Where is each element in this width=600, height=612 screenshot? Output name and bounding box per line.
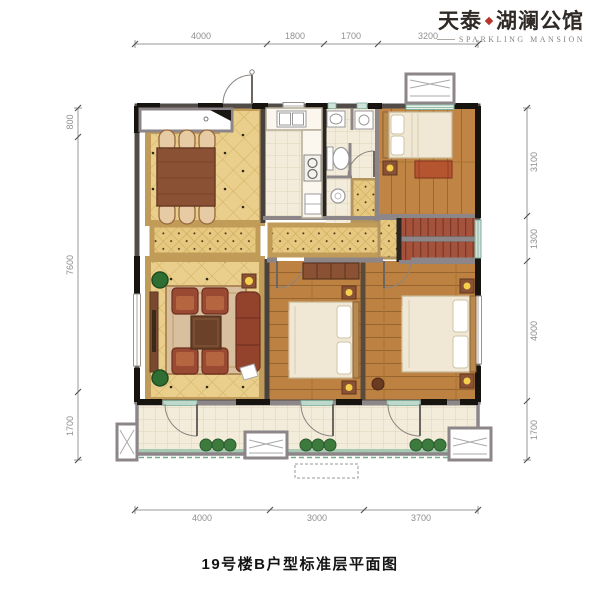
coffee-table xyxy=(191,316,221,349)
living-room-furniture xyxy=(150,272,260,386)
ac-platform-bottom-right xyxy=(449,428,491,460)
hall-cabinet-square xyxy=(379,218,399,258)
pedestal-sink xyxy=(331,189,345,203)
dimension-label: 3700 xyxy=(401,513,441,523)
balcony-threshold-2 xyxy=(301,401,333,406)
plan-caption: 19号楼B户型标准层平面图 xyxy=(0,553,600,574)
ac-platform-left xyxy=(117,424,137,460)
plant-living-2 xyxy=(152,370,168,386)
window-stairs-right xyxy=(475,220,481,258)
plants-balcony-3 xyxy=(410,439,446,451)
window-bath-1 xyxy=(328,103,336,109)
balcony-threshold-3 xyxy=(387,401,420,406)
dimension-label: 3200 xyxy=(408,31,448,41)
dimension-label: 1700 xyxy=(331,31,371,41)
dining-table xyxy=(157,148,215,206)
plants-balcony-1 xyxy=(200,439,236,451)
dimension-label: 1800 xyxy=(275,31,315,41)
closet-top-left xyxy=(140,109,232,131)
plant-living-1 xyxy=(152,272,168,288)
balcony-threshold-1 xyxy=(163,401,197,406)
washing-machine xyxy=(355,111,373,129)
hallway-band-left xyxy=(152,225,258,255)
dimension-label: 3000 xyxy=(297,513,337,523)
ac-unit-balcony xyxy=(245,432,287,458)
drip-edge-dashed xyxy=(295,464,358,478)
dimension-label: 800 xyxy=(65,102,75,142)
sofa xyxy=(236,292,260,372)
floorplan-page: 天泰湖澜公馆 SPARKLING MANSION xyxy=(0,0,600,612)
window-bath-2 xyxy=(357,103,367,109)
dimension-label: 7600 xyxy=(65,245,75,285)
toilet xyxy=(327,147,349,170)
stove xyxy=(304,155,321,181)
dimension-label: 1700 xyxy=(65,406,75,446)
hallway-band-right xyxy=(270,225,388,255)
vanity-square xyxy=(352,179,376,221)
ac-platform-top-right xyxy=(406,74,454,103)
dimension-label: 4000 xyxy=(181,31,221,41)
window-living-left xyxy=(134,294,141,366)
dimension-label: 4000 xyxy=(182,513,222,523)
entry-door xyxy=(223,70,254,104)
stool-master xyxy=(372,378,384,390)
dimension-label: 3100 xyxy=(529,142,539,182)
rug-top-bedroom xyxy=(415,161,452,178)
bed-top-headboard xyxy=(383,112,389,158)
dining-set xyxy=(157,130,215,224)
dimension-label: 4000 xyxy=(529,311,539,351)
dimension-label: 1700 xyxy=(529,410,539,450)
dimension-label: 1300 xyxy=(529,219,539,259)
staircase xyxy=(401,218,476,260)
plants-balcony-2 xyxy=(300,439,336,451)
bedroom-top-furniture xyxy=(383,112,452,178)
